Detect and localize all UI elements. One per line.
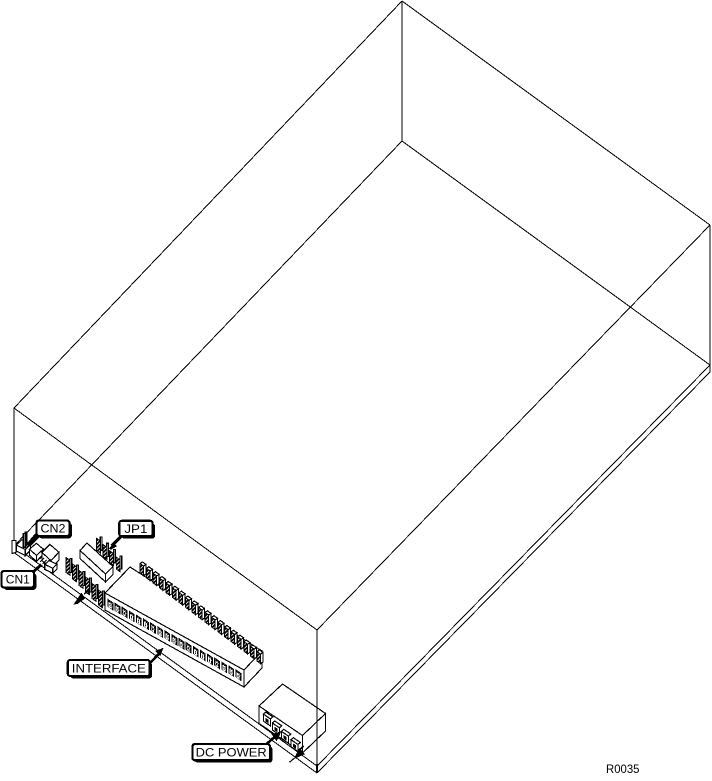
svg-text:DC POWER: DC POWER <box>196 746 267 760</box>
svg-text:CN1: CN1 <box>6 573 30 587</box>
svg-text:R0035: R0035 <box>606 762 640 776</box>
svg-text:JP1: JP1 <box>124 522 147 536</box>
svg-text:CN2: CN2 <box>41 522 66 536</box>
svg-text:INTERFACE: INTERFACE <box>72 661 146 675</box>
